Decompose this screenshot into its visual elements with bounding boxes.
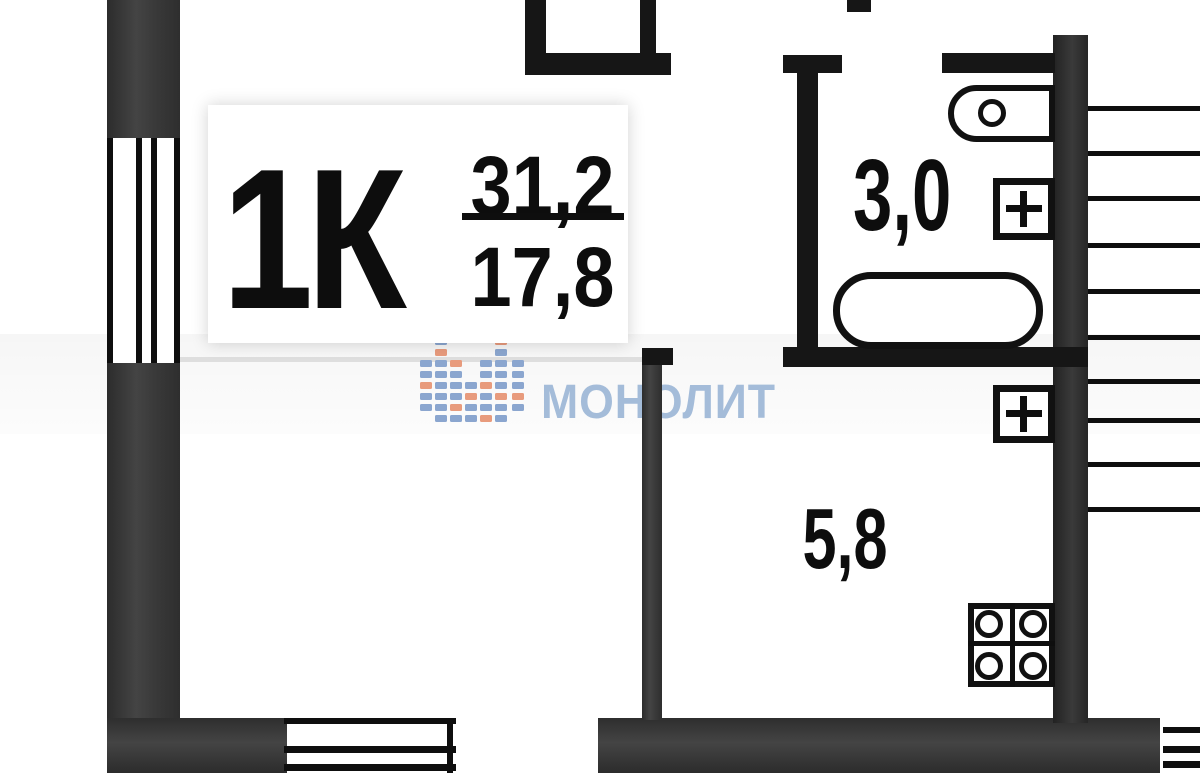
stove-burner-icon xyxy=(975,652,1003,680)
exterior-wall-bottom-main xyxy=(598,718,1160,773)
stair-tread xyxy=(1088,462,1200,467)
bathroom-wall-top xyxy=(942,53,1055,73)
stair-landing-line xyxy=(1163,761,1200,768)
window-left-line xyxy=(151,138,157,365)
stair-tread xyxy=(1088,418,1200,423)
entry-wall-horizontal xyxy=(525,53,671,75)
stair-tread xyxy=(1088,151,1200,156)
window-left-line xyxy=(107,138,113,365)
faint-wall-line xyxy=(180,357,642,362)
vent-plus-icon xyxy=(1020,396,1027,432)
stair-tread xyxy=(1088,196,1200,201)
stair-landing-line xyxy=(1163,727,1200,733)
stove-burner-icon xyxy=(1019,610,1047,638)
stove-burner-icon xyxy=(1019,652,1047,680)
hallway-wall-cap xyxy=(642,348,673,365)
stair-tread xyxy=(1088,379,1200,384)
stair-tread xyxy=(1088,507,1200,512)
stair-tread xyxy=(1088,106,1200,111)
stove-burner-icon xyxy=(975,610,1003,638)
exterior-wall-bottom-left xyxy=(107,718,287,773)
stair-tread xyxy=(1088,335,1200,340)
stair-tread xyxy=(1088,243,1200,248)
unit-type-label: 1К xyxy=(222,140,400,340)
window-bottom-line xyxy=(284,764,456,771)
wall-stub-top xyxy=(847,0,871,12)
hallway-wall xyxy=(642,363,662,720)
window-left-line xyxy=(136,138,142,365)
area-fraction-line xyxy=(462,213,624,220)
monolit-logo-icon xyxy=(420,334,528,426)
bathroom-wall-left-cap-top xyxy=(783,55,842,73)
exterior-wall-left-upper xyxy=(107,0,180,140)
bathtub-icon xyxy=(833,272,1043,349)
exterior-wall-left-lower xyxy=(107,363,180,773)
stair-landing-line xyxy=(1163,746,1200,753)
bathroom-wall-left xyxy=(797,72,818,348)
window-bottom-edge xyxy=(447,718,453,773)
toilet-flush-icon xyxy=(978,99,1006,127)
stove-divider xyxy=(968,641,1055,646)
wall-right-staircase xyxy=(1053,35,1088,723)
bathroom-wall-bottom xyxy=(783,347,1088,367)
vent-plus-icon xyxy=(1020,191,1027,227)
stair-tread xyxy=(1088,289,1200,294)
window-bottom-line xyxy=(284,718,456,724)
area-living-label: 17,8 xyxy=(466,235,620,319)
floor-plan: МОНОЛИТ xyxy=(0,0,1200,773)
entry-wall-right xyxy=(640,0,656,55)
window-left-line xyxy=(174,138,180,365)
bathroom-area-label: 3,0 xyxy=(853,146,951,247)
kitchen-area-label: 5,8 xyxy=(795,497,896,582)
window-left xyxy=(107,138,180,365)
window-bottom-line xyxy=(284,746,456,753)
